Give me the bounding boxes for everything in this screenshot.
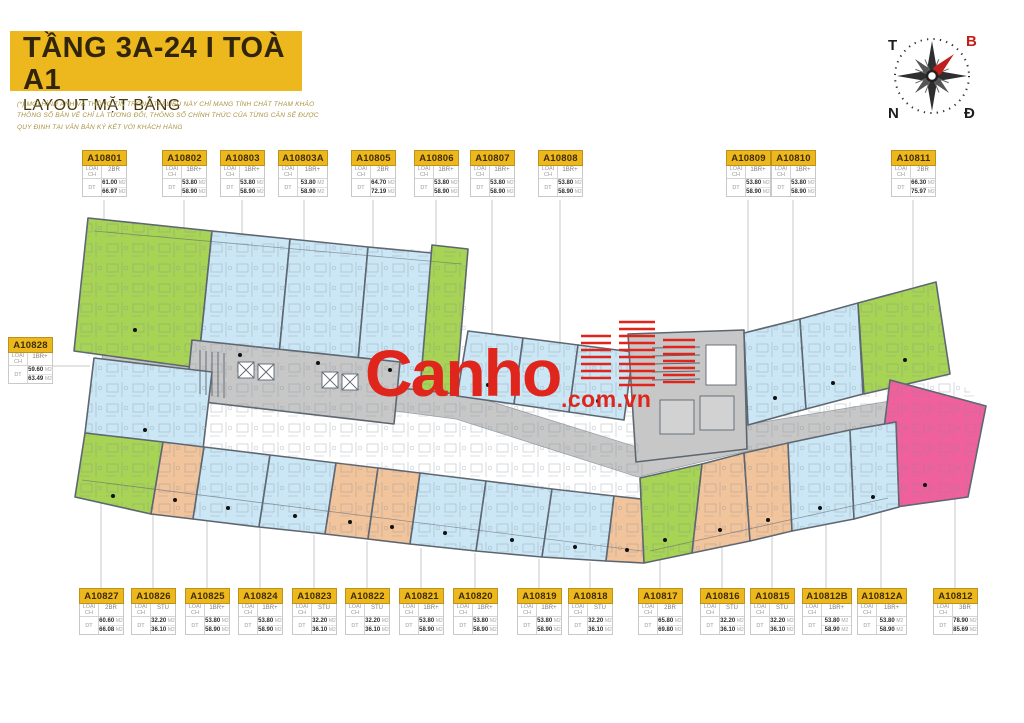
area-value-1: 32.20 M2 <box>720 617 744 625</box>
type-caption: LOẠI CH <box>83 166 102 178</box>
furniture-texture <box>74 218 986 563</box>
unit-id: A10810 <box>771 150 816 166</box>
unit-label: A10807 LOẠI CH 1BR+ DT 53.80 M2 58.90 M2 <box>470 150 515 197</box>
unit-id: A10821 <box>399 588 444 604</box>
area-value-1: 53.80 M2 <box>746 179 770 187</box>
unit-type: 2BR <box>102 166 126 178</box>
unit-id: A10823 <box>292 588 337 604</box>
area-value-2: 58.90 M2 <box>182 187 206 196</box>
type-caption: LOẠI CH <box>639 604 658 616</box>
unit-type: 1BR+ <box>419 604 443 616</box>
unit-type: 1BR+ <box>822 604 851 616</box>
area-value-1: 53.80 M2 <box>240 179 264 187</box>
area-caption: DT <box>569 617 588 634</box>
unit-id: A10820 <box>453 588 498 604</box>
area-value-2: 58.90 M2 <box>298 187 327 196</box>
unit-id: A10811 <box>891 150 936 166</box>
unit-id: A10807 <box>470 150 515 166</box>
area-value-2: 72.19 M2 <box>371 187 395 196</box>
unit-type: STU <box>720 604 744 616</box>
unit-id: A10808 <box>538 150 583 166</box>
type-caption: LOẠI CH <box>803 604 822 616</box>
area-caption: DT <box>293 617 312 634</box>
unit-type: 1BR+ <box>182 166 206 178</box>
area-value-1: 32.20 M2 <box>588 617 612 625</box>
area-value-2: 58.90 M2 <box>419 625 443 634</box>
area-value-2: 58.90 M2 <box>791 187 815 196</box>
unit-id: A10819 <box>517 588 562 604</box>
unit-label: A10825 LOẠI CH 1BR+ DT 53.80 M2 58.90 M2 <box>185 588 230 635</box>
area-value-1: 32.20 M2 <box>365 617 389 625</box>
area-value-2: 66.08 M2 <box>99 625 123 634</box>
area-caption: DT <box>132 617 151 634</box>
type-caption: LOẠI CH <box>9 353 28 365</box>
area-caption: DT <box>751 617 770 634</box>
unit-label: A10806 LOẠI CH 1BR+ DT 53.80 M2 58.90 M2 <box>414 150 459 197</box>
area-caption: DT <box>639 617 658 634</box>
type-caption: LOẠI CH <box>934 604 953 616</box>
type-caption: LOẠI CH <box>279 166 298 178</box>
unit-id: A10816 <box>700 588 745 604</box>
area-caption: DT <box>454 617 473 634</box>
unit-id: A10818 <box>568 588 613 604</box>
unit-label: A10828 LOẠI CH 1BR+ DT 59.60 M2 63.49 M2 <box>8 337 53 384</box>
unit-label: A10812A LOẠI CH 1BR+ DT 53.80 M2 58.90 M… <box>857 588 907 635</box>
unit-type: 1BR+ <box>258 604 282 616</box>
unit-label: A10801 LOẠI CH 2BR DT 61.00 M2 66.97 M2 <box>82 150 127 197</box>
area-value-1: 53.80 M2 <box>182 179 206 187</box>
unit-label: A10811 LOẠI CH 2BR DT 66.30 M2 75.97 M2 <box>891 150 936 197</box>
unit-label: A10818 LOẠI CH STU DT 32.20 M2 36.10 M2 <box>568 588 613 635</box>
unit-label: A10810 LOẠI CH 1BR+ DT 53.80 M2 58.90 M2 <box>771 150 816 197</box>
unit-label: A10802 LOẠI CH 1BR+ DT 53.80 M2 58.90 M2 <box>162 150 207 197</box>
unit-label: A10827 LOẠI CH 2BR DT 60.60 M2 66.08 M2 <box>79 588 124 635</box>
unit-type: 2BR <box>371 166 395 178</box>
type-caption: LOẠI CH <box>858 604 877 616</box>
unit-label: A10803 LOẠI CH 1BR+ DT 53.80 M2 58.90 M2 <box>220 150 265 197</box>
unit-label: A10826 LOẠI CH STU DT 32.20 M2 36.10 M2 <box>131 588 176 635</box>
unit-label: A10816 LOẠI CH STU DT 32.20 M2 36.10 M2 <box>700 588 745 635</box>
unit-label: A10812B LOẠI CH 1BR+ DT 53.80 M2 58.90 M… <box>802 588 852 635</box>
unit-id: A10803A <box>278 150 328 166</box>
unit-label: A10821 LOẠI CH 1BR+ DT 53.80 M2 58.90 M2 <box>399 588 444 635</box>
unit-type: STU <box>312 604 336 616</box>
area-value-1: 78.90 M2 <box>953 617 977 625</box>
area-value-2: 58.90 M2 <box>490 187 514 196</box>
area-value-2: 58.90 M2 <box>473 625 497 634</box>
area-value-1: 53.80 M2 <box>537 617 561 625</box>
area-value-2: 58.90 M2 <box>434 187 458 196</box>
area-value-1: 53.80 M2 <box>434 179 458 187</box>
type-caption: LOẠI CH <box>132 604 151 616</box>
area-value-1: 53.80 M2 <box>205 617 229 625</box>
type-caption: LOẠI CH <box>80 604 99 616</box>
unit-id: A10826 <box>131 588 176 604</box>
area-value-2: 58.90 M2 <box>558 187 582 196</box>
unit-type: 2BR <box>911 166 935 178</box>
area-value-2: 58.90 M2 <box>822 625 851 634</box>
type-caption: LOẠI CH <box>186 604 205 616</box>
type-caption: LOẠI CH <box>772 166 791 178</box>
unit-type: 1BR+ <box>746 166 770 178</box>
type-caption: LOẠI CH <box>471 166 490 178</box>
unit-label: A10812 LOẠI CH 3BR DT 78.90 M2 85.69 M2 <box>933 588 978 635</box>
type-caption: LOẠI CH <box>539 166 558 178</box>
area-caption: DT <box>858 617 877 634</box>
unit-type: 1BR+ <box>490 166 514 178</box>
area-value-2: 36.10 M2 <box>770 625 794 634</box>
area-value-1: 53.80 M2 <box>490 179 514 187</box>
unit-id: A10817 <box>638 588 683 604</box>
area-caption: DT <box>346 617 365 634</box>
area-caption: DT <box>471 179 490 196</box>
area-value-1: 53.80 M2 <box>473 617 497 625</box>
type-caption: LOẠI CH <box>415 166 434 178</box>
type-caption: LOẠI CH <box>239 604 258 616</box>
area-value-2: 75.97 M2 <box>911 187 935 196</box>
area-caption: DT <box>772 179 791 196</box>
area-value-2: 58.90 M2 <box>240 187 264 196</box>
unit-type: 1BR+ <box>877 604 906 616</box>
unit-id: A10825 <box>185 588 230 604</box>
area-caption: DT <box>539 179 558 196</box>
area-value-2: 36.10 M2 <box>720 625 744 634</box>
unit-type: STU <box>770 604 794 616</box>
area-value-2: 36.10 M2 <box>365 625 389 634</box>
area-value-1: 53.80 M2 <box>419 617 443 625</box>
area-value-2: 66.97 M2 <box>102 187 126 196</box>
unit-id: A10824 <box>238 588 283 604</box>
area-value-1: 60.60 M2 <box>99 617 123 625</box>
type-caption: LOẠI CH <box>701 604 720 616</box>
area-caption: DT <box>934 617 953 634</box>
unit-id: A10806 <box>414 150 459 166</box>
unit-type: STU <box>151 604 175 616</box>
type-caption: LOẠI CH <box>454 604 473 616</box>
area-caption: DT <box>239 617 258 634</box>
area-value-1: 32.20 M2 <box>312 617 336 625</box>
area-value-1: 32.20 M2 <box>151 617 175 625</box>
area-value-2: 36.10 M2 <box>312 625 336 634</box>
unit-id: A10827 <box>79 588 124 604</box>
area-value-2: 69.80 M2 <box>658 625 682 634</box>
area-value-2: 36.10 M2 <box>151 625 175 634</box>
unit-type: 1BR+ <box>205 604 229 616</box>
unit-type: 1BR+ <box>434 166 458 178</box>
type-caption: LOẠI CH <box>346 604 365 616</box>
unit-type: 3BR <box>953 604 977 616</box>
unit-id: A10822 <box>345 588 390 604</box>
area-value-2: 58.90 M2 <box>258 625 282 634</box>
area-caption: DT <box>186 617 205 634</box>
area-caption: DT <box>9 366 28 383</box>
unit-type: 1BR+ <box>537 604 561 616</box>
unit-label: A10820 LOẠI CH 1BR+ DT 53.80 M2 58.90 M2 <box>453 588 498 635</box>
area-value-1: 32.20 M2 <box>770 617 794 625</box>
unit-label: A10809 LOẠI CH 1BR+ DT 53.80 M2 58.90 M2 <box>726 150 771 197</box>
type-caption: LOẠI CH <box>163 166 182 178</box>
unit-type: 1BR+ <box>791 166 815 178</box>
area-caption: DT <box>163 179 182 196</box>
area-value-1: 66.30 M2 <box>911 179 935 187</box>
area-value-2: 58.90 M2 <box>537 625 561 634</box>
area-caption: DT <box>518 617 537 634</box>
unit-id: A10815 <box>750 588 795 604</box>
unit-id: A10812A <box>857 588 907 604</box>
area-value-2: 58.90 M2 <box>205 625 229 634</box>
area-value-1: 53.80 M2 <box>791 179 815 187</box>
area-value-2: 58.90 M2 <box>877 625 906 634</box>
unit-label: A10808 LOẠI CH 1BR+ DT 53.80 M2 58.90 M2 <box>538 150 583 197</box>
unit-id: A10812B <box>802 588 852 604</box>
area-value-2: 63.49 M2 <box>28 374 52 383</box>
type-caption: LOẠI CH <box>727 166 746 178</box>
area-value-2: 85.69 M2 <box>953 625 977 634</box>
area-caption: DT <box>701 617 720 634</box>
area-value-1: 53.80 M2 <box>877 617 906 625</box>
type-caption: LOẠI CH <box>892 166 911 178</box>
area-value-1: 65.80 M2 <box>658 617 682 625</box>
unit-label: A10824 LOẠI CH 1BR+ DT 53.80 M2 58.90 M2 <box>238 588 283 635</box>
unit-label: A10805 LOẠI CH 2BR DT 64.70 M2 72.19 M2 <box>351 150 396 197</box>
area-caption: DT <box>279 179 298 196</box>
unit-label: A10815 LOẠI CH STU DT 32.20 M2 36.10 M2 <box>750 588 795 635</box>
unit-type: 1BR+ <box>298 166 327 178</box>
area-caption: DT <box>415 179 434 196</box>
type-caption: LOẠI CH <box>352 166 371 178</box>
unit-label: A10819 LOẠI CH 1BR+ DT 53.80 M2 58.90 M2 <box>517 588 562 635</box>
area-caption: DT <box>80 617 99 634</box>
unit-id: A10812 <box>933 588 978 604</box>
area-value-1: 53.80 M2 <box>258 617 282 625</box>
unit-label: A10803A LOẠI CH 1BR+ DT 53.80 M2 58.90 M… <box>278 150 328 197</box>
unit-id: A10801 <box>82 150 127 166</box>
area-caption: DT <box>352 179 371 196</box>
area-caption: DT <box>400 617 419 634</box>
type-caption: LOẠI CH <box>751 604 770 616</box>
unit-type: STU <box>588 604 612 616</box>
unit-label: A10823 LOẠI CH STU DT 32.20 M2 36.10 M2 <box>292 588 337 635</box>
area-value-1: 53.80 M2 <box>298 179 327 187</box>
unit-label: A10822 LOẠI CH STU DT 32.20 M2 36.10 M2 <box>345 588 390 635</box>
type-caption: LOẠI CH <box>400 604 419 616</box>
unit-label: A10817 LOẠI CH 2BR DT 65.80 M2 69.80 M2 <box>638 588 683 635</box>
unit-id: A10828 <box>8 337 53 353</box>
area-value-1: 61.00 M2 <box>102 179 126 187</box>
area-value-1: 59.60 M2 <box>28 366 52 374</box>
unit-type: 1BR+ <box>473 604 497 616</box>
area-value-1: 64.70 M2 <box>371 179 395 187</box>
unit-type: 2BR <box>99 604 123 616</box>
type-caption: LOẠI CH <box>569 604 588 616</box>
unit-id: A10803 <box>220 150 265 166</box>
area-value-1: 53.80 M2 <box>558 179 582 187</box>
area-value-1: 53.80 M2 <box>822 617 851 625</box>
area-caption: DT <box>83 179 102 196</box>
area-value-2: 58.90 M2 <box>746 187 770 196</box>
area-caption: DT <box>221 179 240 196</box>
unit-type: 1BR+ <box>240 166 264 178</box>
unit-type: 2BR <box>658 604 682 616</box>
unit-id: A10805 <box>351 150 396 166</box>
type-caption: LOẠI CH <box>518 604 537 616</box>
unit-type: 1BR+ <box>28 353 52 365</box>
floorplan-page: TẦNG 3A-24 I TOÀ A1 LAYOUT MẶT BẰNG (*) … <box>0 0 1024 723</box>
area-caption: DT <box>803 617 822 634</box>
unit-id: A10802 <box>162 150 207 166</box>
area-caption: DT <box>727 179 746 196</box>
area-value-2: 36.10 M2 <box>588 625 612 634</box>
unit-type: 1BR+ <box>558 166 582 178</box>
type-caption: LOẠI CH <box>293 604 312 616</box>
unit-type: STU <box>365 604 389 616</box>
area-caption: DT <box>892 179 911 196</box>
type-caption: LOẠI CH <box>221 166 240 178</box>
unit-id: A10809 <box>726 150 771 166</box>
